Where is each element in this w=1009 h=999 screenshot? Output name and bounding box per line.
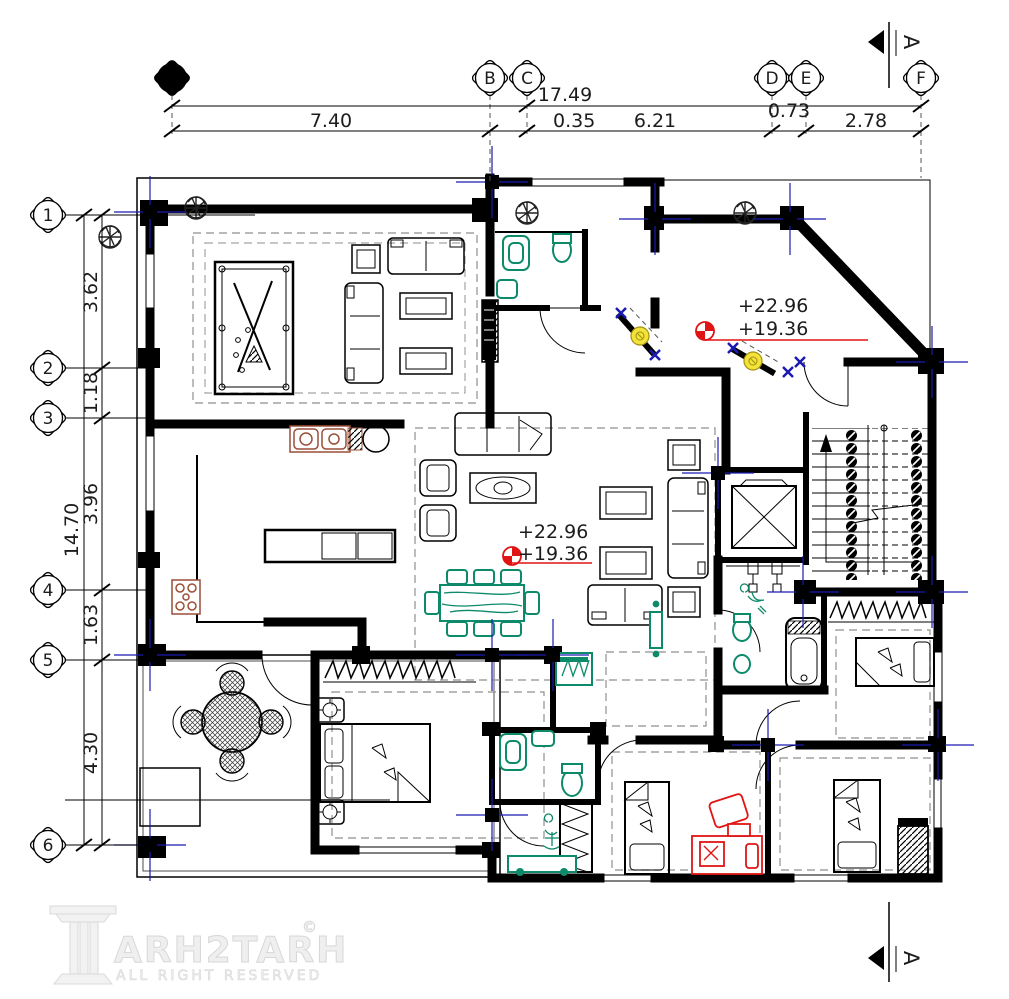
svg-text:6: 6: [43, 836, 54, 856]
copyright-mark: ©: [302, 918, 317, 936]
dining-chair: [501, 622, 521, 636]
bedroom-middle: [625, 782, 762, 874]
kitchen-sink-unit: [290, 426, 362, 452]
bidet-icon: [734, 655, 750, 673]
blanket-fold: [625, 782, 648, 800]
ceiling-lamp-icon: [631, 327, 649, 345]
svg-text:C: C: [521, 69, 533, 89]
sofa-right: [668, 478, 708, 578]
svg-text:4: 4: [43, 581, 54, 601]
armchair: [420, 460, 456, 496]
dimensions-left: 14.70 3.62 1.18 3.96 1.63 4.30: [61, 209, 110, 851]
svg-text:1: 1: [43, 206, 54, 226]
svg-text:B: B: [484, 69, 496, 89]
elevation-lower: +19.36: [518, 543, 588, 565]
dining-chair: [447, 570, 467, 584]
plant-icon: [734, 202, 756, 224]
svg-text:E: E: [801, 69, 812, 89]
elevator-door-gear: [726, 562, 800, 592]
duvet-texture: [372, 744, 396, 780]
svg-text:3.96: 3.96: [80, 483, 102, 525]
staircase: [812, 425, 928, 580]
nightstand: [316, 800, 344, 824]
blanket-fold: [834, 780, 858, 798]
coffee-table: [400, 293, 452, 319]
bench-icon: [508, 856, 576, 876]
plant-icon: [185, 197, 207, 219]
pillow: [325, 729, 343, 763]
nightstand: [316, 698, 344, 722]
ceiling-lamp-icon: [744, 352, 762, 370]
svg-text:A: A: [899, 35, 923, 50]
elevation-upper: +22.96: [518, 521, 588, 543]
wardrobe-zigzag: [325, 661, 455, 678]
grid-bubble-B: B: [471, 59, 509, 97]
svg-text:1.63: 1.63: [80, 604, 102, 646]
floor-plan-page: +22.96 +19.36 +22.96 +19.36: [0, 0, 1009, 999]
side-table: [352, 245, 380, 273]
brand-tagline: ALL RIGHT RESERVED: [116, 968, 322, 984]
bedroom-top-right: [828, 602, 934, 686]
stove-icon: [172, 580, 200, 614]
pillow: [630, 844, 664, 870]
throw-blanket: [520, 420, 542, 450]
svg-text:0.35: 0.35: [553, 110, 595, 132]
plant-icon: [516, 202, 538, 224]
blanket-fold: [856, 662, 880, 686]
patio-table: [202, 692, 262, 752]
elevation-lower: +19.36: [738, 318, 808, 340]
desk-set-red: [692, 793, 762, 874]
bedroom-bottom-right: [834, 780, 928, 874]
pillow: [914, 642, 930, 682]
svg-text:A: A: [899, 951, 923, 966]
svg-text:7.40: 7.40: [310, 110, 352, 132]
floor-plan-canvas: +22.96 +19.36 +22.96 +19.36: [0, 0, 1009, 999]
elevation-marker-living: +22.96 +19.36: [503, 521, 592, 565]
grid-bubble-F: F: [902, 59, 940, 97]
patio-chair: [220, 749, 244, 773]
wardrobe-zigzag: [830, 602, 926, 618]
stair-balusters: [845, 430, 858, 580]
svg-text:D: D: [765, 69, 778, 89]
radiator-icon: [650, 601, 662, 658]
entry-bathroom: [497, 234, 571, 298]
svg-text:4.30: 4.30: [80, 732, 102, 774]
section-arrow-icon: [868, 946, 884, 970]
round-sink: [363, 426, 389, 452]
section-marker-bottom: A: [868, 902, 923, 982]
svg-text:2.78: 2.78: [845, 110, 887, 132]
patio-chair: [220, 671, 244, 695]
pillow: [838, 842, 876, 868]
dining-chair: [474, 622, 494, 636]
grid-bubble-6: 6: [29, 826, 67, 864]
coffee-table: [400, 348, 452, 374]
kitchen: [172, 426, 395, 622]
grid-columns: B C D E F: [153, 59, 940, 182]
brand-name: ARH2TARH: [114, 930, 348, 971]
svg-text:1.18: 1.18: [80, 372, 102, 414]
sofa-top: [455, 413, 551, 455]
single-bed: [856, 638, 934, 686]
single-bed: [625, 782, 669, 874]
pillar-logo-icon: [50, 906, 116, 984]
armchair: [420, 505, 456, 541]
grid-bubble-1: 1: [29, 196, 67, 234]
grid-bubble-2: 2: [29, 349, 67, 387]
island-counter: [265, 530, 395, 562]
dining-chair: [425, 592, 439, 614]
elevation-marker-foyer: +22.96 +19.36: [696, 295, 868, 340]
washbasin-icon: [497, 280, 517, 298]
dining-chair: [474, 570, 494, 584]
washing-machine: [556, 653, 592, 685]
pool-rack: [246, 346, 262, 362]
svg-text:2: 2: [43, 359, 54, 379]
dim-overall-width: 17.49: [538, 84, 592, 106]
shelf-unit: [898, 826, 928, 874]
shower-icon: [544, 814, 560, 849]
double-bed: [320, 724, 430, 802]
elevator: [726, 480, 800, 592]
svg-text:5: 5: [43, 651, 54, 671]
pillow: [325, 766, 343, 798]
svg-text:3.62: 3.62: [80, 271, 102, 313]
patio-chair: [181, 710, 205, 734]
section-arrow-icon: [868, 30, 884, 54]
dimensions-top: 17.49 7.40 0.35 6.21 0.73 2.78: [164, 84, 929, 137]
grid-bubble-4: 4: [29, 571, 67, 609]
single-bed: [834, 780, 880, 872]
oval-coffee-table: [470, 473, 536, 503]
dining-chair: [501, 570, 521, 584]
elevation-upper: +22.96: [738, 295, 808, 317]
kitchen-counter: [197, 455, 268, 622]
grid-bubble-A: [153, 59, 191, 97]
svg-text:6.21: 6.21: [634, 110, 676, 132]
planter-box: [140, 768, 200, 826]
grid-bubble-E: E: [787, 59, 825, 97]
blanket-fold: [398, 772, 430, 802]
svg-text:0.73: 0.73: [768, 100, 810, 122]
sofa-3seat: [345, 283, 383, 383]
svg-text:3: 3: [43, 409, 54, 429]
brand-watermark: ARH2TARH © ALL RIGHT RESERVED: [50, 906, 348, 984]
grid-bubble-5: 5: [29, 641, 67, 679]
svg-text:F: F: [916, 69, 926, 89]
grid-bubble-D: D: [753, 59, 791, 97]
washbasin-icon: [532, 731, 554, 746]
billiard-room: [215, 238, 496, 394]
dining-chair: [447, 622, 467, 636]
dining-set: [425, 570, 539, 636]
patio-chair: [259, 710, 283, 734]
grid-bubble-3: 3: [29, 399, 67, 437]
office-chair-red: [708, 793, 748, 828]
dining-chair: [525, 592, 539, 614]
